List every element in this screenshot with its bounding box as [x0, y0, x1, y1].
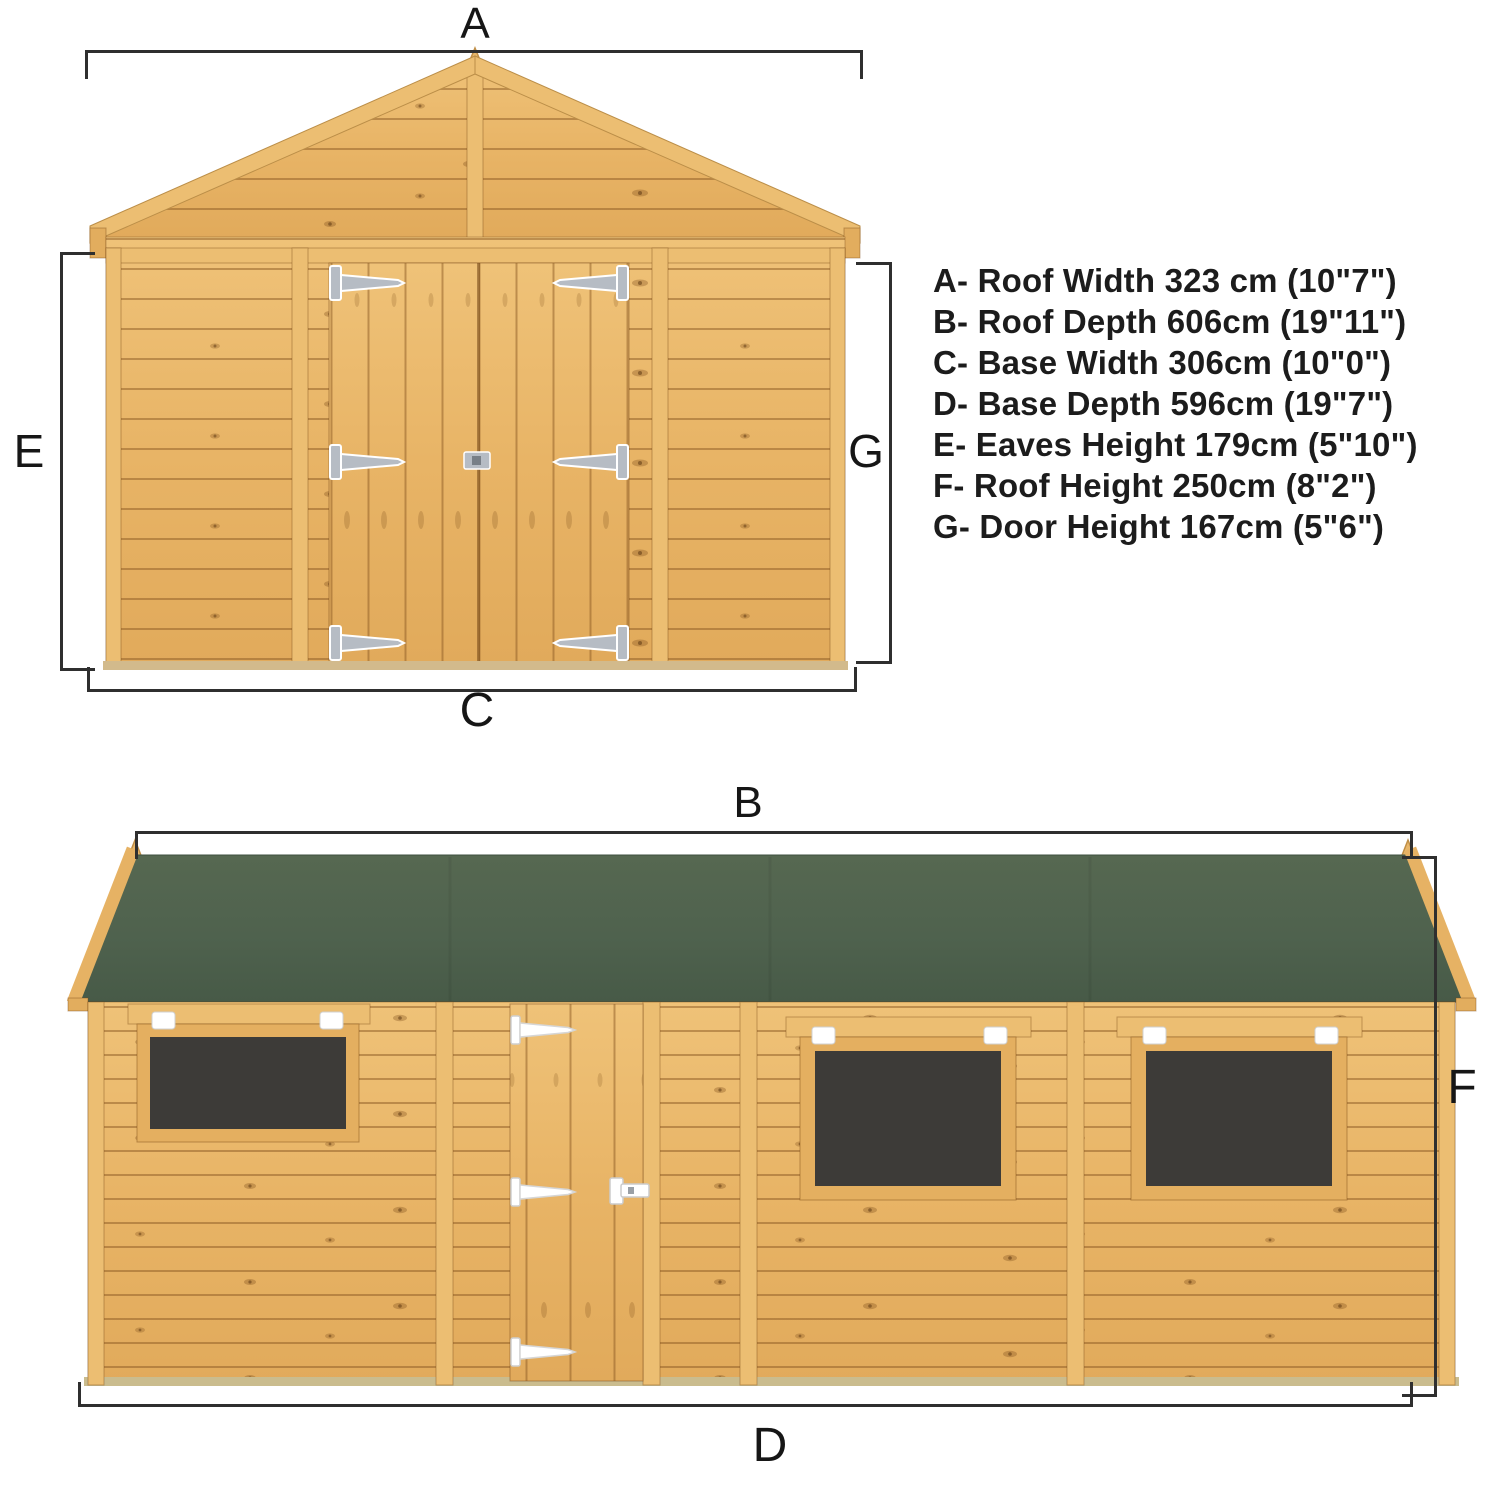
eaves-corner-right: [1456, 998, 1476, 1011]
window-glazing: [1146, 1051, 1332, 1186]
wall-trim: [436, 1002, 453, 1385]
legend-item-d: D- Base Depth 596cm (19"7"): [933, 383, 1453, 424]
window: [1117, 1017, 1362, 1200]
window-glazing: [150, 1037, 346, 1129]
dim-bracket-b: [135, 831, 1413, 859]
window-clip-icon: [152, 1012, 175, 1029]
corner-trim-left: [88, 1002, 104, 1385]
wall-trim: [652, 248, 668, 668]
dim-bracket-e: [60, 252, 95, 671]
wall-trim: [1067, 1002, 1084, 1385]
window-clip-icon: [984, 1027, 1007, 1044]
dim-label-b: B: [718, 781, 778, 825]
window-glazing: [815, 1051, 1001, 1186]
legend-item-g: G- Door Height 167cm (5"6"): [933, 506, 1453, 547]
dim-label-g: G: [848, 428, 884, 474]
gable-centre-trim: [467, 72, 483, 250]
dim-bracket-d: [78, 1382, 1413, 1407]
window-clip-icon: [320, 1012, 343, 1029]
corner-trim-left: [106, 248, 121, 668]
dim-label-c: C: [447, 687, 507, 735]
window-clip-icon: [1315, 1027, 1338, 1044]
dim-label-e: E: [8, 428, 50, 474]
legend-item-f: F- Roof Height 250cm (8"2"): [933, 465, 1453, 506]
door-latch-icon: [464, 452, 490, 469]
corner-trim-right: [830, 248, 845, 668]
dim-bracket-f: [1402, 856, 1437, 1397]
window: [128, 1004, 370, 1142]
dim-label-a: A: [447, 2, 503, 46]
legend-item-a: A- Roof Width 323 cm (10"7"): [933, 260, 1453, 301]
dimension-legend: A- Roof Width 323 cm (10"7") B- Roof Dep…: [933, 260, 1453, 547]
corner-trim-right: [1439, 1002, 1455, 1385]
wall-trim: [292, 248, 308, 668]
dim-label-d: D: [740, 1422, 800, 1470]
legend-item-c: C- Base Width 306cm (10"0"): [933, 342, 1453, 383]
dim-label-f: F: [1440, 1064, 1484, 1112]
shed-dimension-diagram: A E G C A- Roof Width 323 cm (10"7") B- …: [0, 0, 1500, 1500]
front-elevation: [0, 0, 910, 730]
legend-item-e: E- Eaves Height 179cm (5"10"): [933, 424, 1453, 465]
side-elevation: [0, 790, 1500, 1435]
eaves-corner-left: [68, 998, 88, 1011]
eaves-return-right: [844, 228, 860, 258]
dim-bracket-a: [85, 50, 863, 79]
window-clip-icon: [812, 1027, 835, 1044]
window-clip-icon: [1143, 1027, 1166, 1044]
wall-header-rail: [106, 248, 845, 263]
wall-trim: [740, 1002, 757, 1385]
legend-item-b: B- Roof Depth 606cm (19"11"): [933, 301, 1453, 342]
window: [786, 1017, 1031, 1200]
